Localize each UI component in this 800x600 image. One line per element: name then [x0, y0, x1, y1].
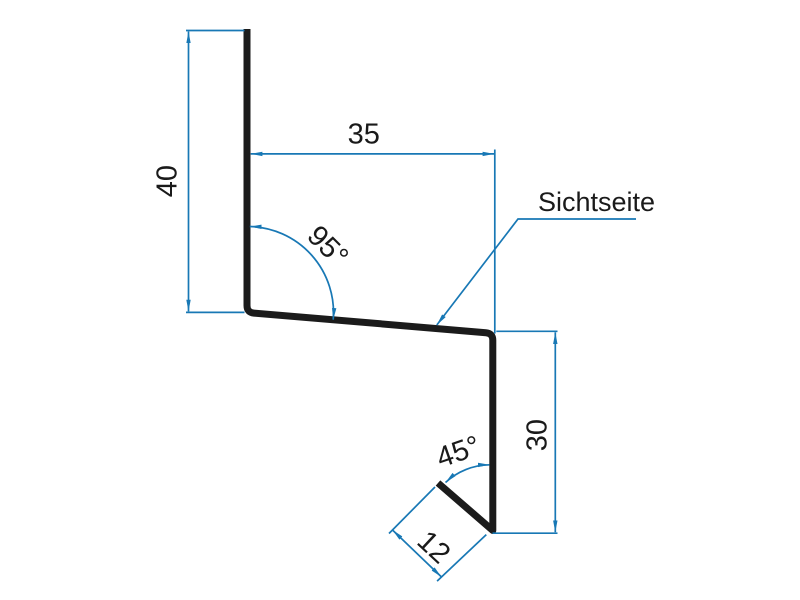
svg-text:Sichtseite: Sichtseite [538, 187, 655, 217]
svg-text:35: 35 [348, 119, 380, 151]
svg-text:40: 40 [152, 165, 184, 197]
svg-text:30: 30 [522, 419, 554, 451]
